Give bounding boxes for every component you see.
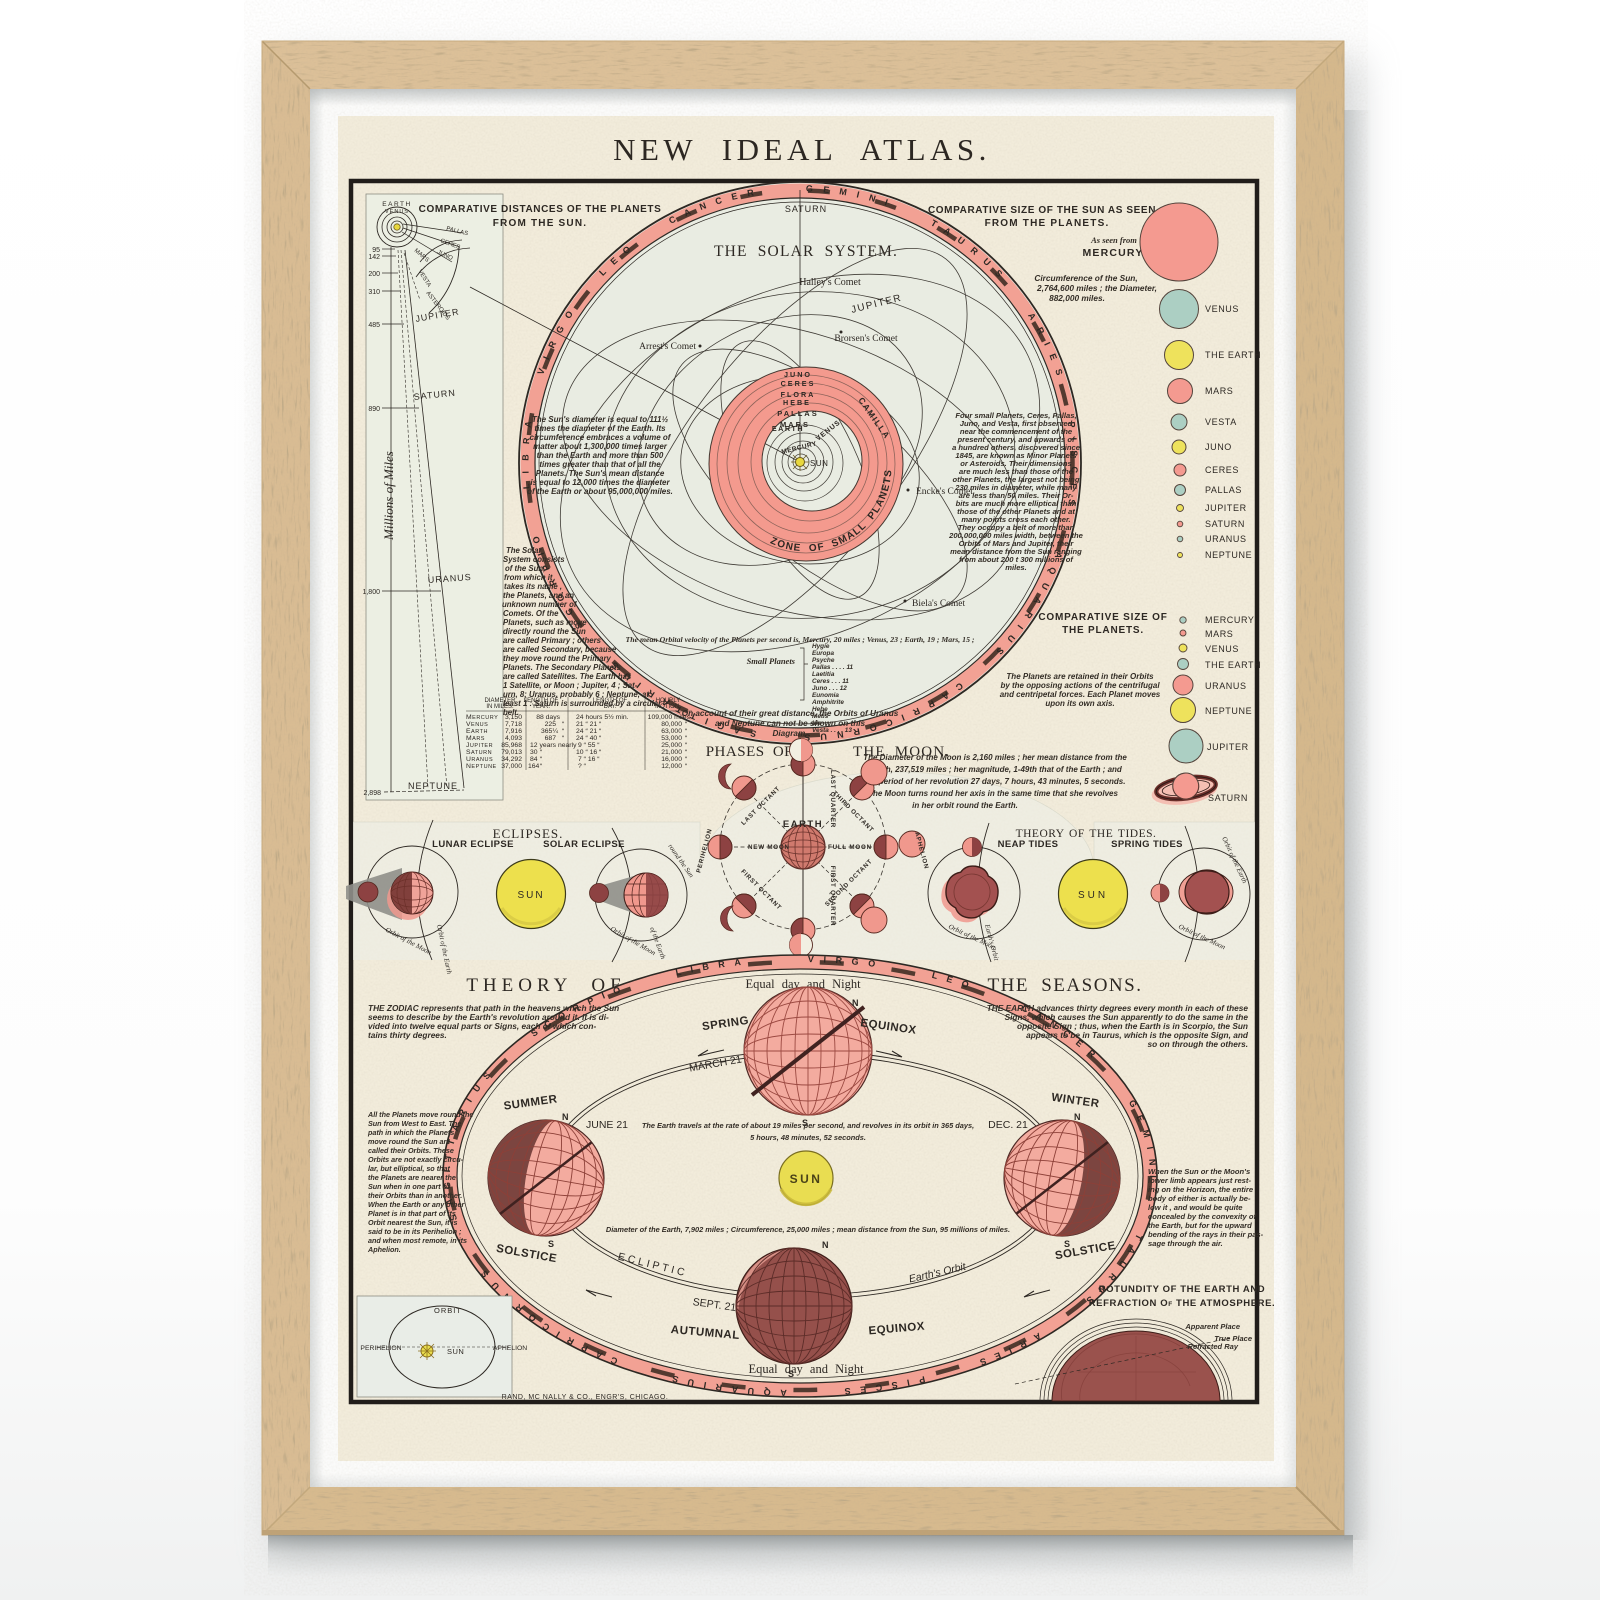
svg-text:200: 200 (368, 271, 380, 278)
svg-text:PALLAS: PALLAS (777, 409, 818, 418)
svg-text:MERCURY: MERCURY (1082, 247, 1143, 259)
svg-text:687: 687 (545, 735, 557, 742)
svg-text:sage through the air.: sage through the air. (1148, 1239, 1223, 1248)
svg-text:of the Earth or about 95,000,0: of the Earth or about 95,000,000 miles. (527, 487, 673, 496)
svg-text:21,000: 21,000 (661, 749, 682, 756)
svg-text:1 Satellite, or Moon ; Jupite: 1 Satellite, or Moon ; Jupiter, 4 ; Sat- (503, 681, 638, 690)
svg-text:N: N (1074, 1112, 1081, 1122)
svg-text:Sun from West to East. The: Sun from West to East. The (368, 1119, 461, 1128)
svg-text:109,000 miles: 109,000 miles (648, 714, 691, 721)
svg-text:Pallas . . . . 11: Pallas . . . . 11 (812, 664, 854, 671)
svg-text:Juno . . . 12: Juno . . . 12 (812, 685, 847, 692)
svg-text:310: 310 (368, 289, 380, 296)
svg-text:All the Planets move round the: All the Planets move round the (367, 1110, 473, 1119)
svg-text:890: 890 (368, 406, 380, 413)
svg-text:34,292: 34,292 (501, 756, 522, 763)
svg-text:miles.: miles. (1005, 563, 1027, 572)
svg-text:1,800: 1,800 (362, 589, 380, 596)
svg-text:from which it: from which it (504, 573, 553, 582)
svg-text:System consists: System consists (503, 555, 565, 564)
svg-text:FULL MOON: FULL MOON (828, 844, 872, 851)
svg-text:CERES: CERES (781, 379, 816, 388)
svg-text:2,764,600 miles ; the Diamete: 2,764,600 miles ; the Diameter, (1036, 283, 1157, 293)
svg-text:concealed by the convexity of: concealed by the convexity of (1148, 1212, 1258, 1221)
svg-text:PHASES OF: PHASES OF (706, 744, 793, 760)
svg-text:said to be in its Perihelion ;: said to be in its Perihelion ; (368, 1227, 462, 1236)
svg-text:142: 142 (368, 254, 380, 261)
svg-text:and Neptune can not be shown o: and Neptune can not be shown on this (715, 719, 866, 728)
svg-text:21 “ 21 “: 21 “ 21 “ (576, 721, 602, 728)
svg-text:RAND, MC NALLY & CO., ENGR'S,: RAND, MC NALLY & CO., ENGR'S, CHICAGO. (502, 1394, 669, 1401)
svg-text:88 days: 88 days (536, 714, 560, 721)
svg-text:JUPITER: JUPITER (1207, 742, 1249, 752)
svg-text:low it , and would be quite: low it , and would be quite (1148, 1203, 1243, 1212)
svg-text:The Earth travels at the rate: The Earth travels at the rate of about 1… (642, 1121, 974, 1130)
svg-text:than the Earth and more than 5: than the Earth and more than 500 (537, 451, 664, 460)
svg-text:MARS: MARS (1205, 386, 1233, 396)
svg-text:EARTH: EARTH (772, 424, 804, 433)
svg-text:63,000: 63,000 (661, 728, 682, 735)
svg-text:84: 84 (530, 756, 538, 763)
svg-text:As seen from: As seen from (1090, 235, 1137, 245)
svg-text:SPRING TIDES: SPRING TIDES (1111, 839, 1183, 850)
svg-text:are called Secondary, because: are called Secondary, because (503, 645, 617, 654)
svg-text:JUNE 21: JUNE 21 (586, 1119, 628, 1131)
svg-text:? “: ? “ (578, 763, 587, 770)
svg-text:9 “ 55 “: 9 “ 55 “ (578, 742, 600, 749)
svg-text:Apparent Place: Apparent Place (1184, 1322, 1240, 1331)
svg-text:VENUS: VENUS (466, 721, 488, 728)
svg-text:85,968: 85,968 (501, 742, 522, 749)
svg-text:Eunomia: Eunomia (812, 692, 839, 699)
svg-text:unknown number of: unknown number of (502, 600, 578, 609)
svg-text:upon its own axis.: upon its own axis. (1045, 699, 1114, 708)
svg-text:NEPTUNE: NEPTUNE (408, 781, 458, 791)
svg-text:VESTA: VESTA (1205, 417, 1237, 427)
svg-text:THE SEASONS.: THE SEASONS. (988, 975, 1143, 996)
svg-text:COMPARATIVE SIZE OF THE SUN AS: COMPARATIVE SIZE OF THE SUN AS SEEN (928, 205, 1156, 216)
svg-text:Psyche: Psyche (812, 657, 835, 664)
svg-text:10 “ 16 “: 10 “ 16 “ (576, 749, 602, 756)
svg-text:THE PLANETS.: THE PLANETS. (1062, 625, 1144, 636)
svg-text:485: 485 (368, 322, 380, 329)
svg-text:SATURN: SATURN (1208, 793, 1248, 803)
svg-text:5 hours, 48 minutes, 52 second: 5 hours, 48 minutes, 52 seconds. (750, 1133, 866, 1142)
svg-text:body of either is actually be-: body of either is actually be- (1148, 1194, 1251, 1203)
svg-text:COMPARATIVE SIZE OF: COMPARATIVE SIZE OF (1038, 612, 1167, 623)
svg-text:is equal to 12,000 times the d: is equal to 12,000 times the diameter (530, 478, 670, 487)
svg-text:MERCURY: MERCURY (1205, 615, 1255, 625)
svg-text:FROM THE PLANETS.: FROM THE PLANETS. (985, 218, 1110, 229)
svg-text:Small Planets: Small Planets (747, 656, 796, 666)
svg-text:The Sun's diameter is equal to: The Sun's diameter is equal to 111½ (532, 415, 669, 424)
svg-text:their Orbits than in another.: their Orbits than in another. (368, 1191, 462, 1200)
svg-text:HEBE: HEBE (783, 398, 811, 407)
svg-text:bending of the rays in their p: bending of the rays in their pas- (1148, 1230, 1264, 1239)
svg-text:matter about 1,300,000 times l: matter about 1,300,000 times larger (533, 442, 668, 451)
svg-text:the Planets, and an: the Planets, and an (503, 591, 574, 600)
svg-text:Arrest's Comet: Arrest's Comet (639, 342, 696, 352)
svg-text:Sun when in one part of: Sun when in one part of (368, 1182, 450, 1191)
svg-text:IN MILES.: IN MILES. (486, 704, 514, 710)
svg-text:NEW MOON: NEW MOON (748, 844, 790, 851)
svg-text:lower limb appears just rest-: lower limb appears just rest- (1148, 1176, 1251, 1185)
svg-text:MARS: MARS (1205, 629, 1233, 639)
svg-text:Planets, such as move: Planets, such as move (503, 618, 587, 627)
svg-text:VENUS: VENUS (1205, 304, 1239, 314)
svg-text:YEAR.: YEAR. (532, 704, 550, 710)
svg-text:SATURN: SATURN (785, 204, 827, 214)
svg-text:The Diameter of the Moon is 2: The Diameter of the Moon is 2,160 miles … (863, 753, 1127, 762)
svg-text:365¼: 365¼ (541, 728, 558, 735)
svg-text:LAST QUARTER: LAST QUARTER (829, 770, 836, 828)
svg-text:directly round the Sun: directly round the Sun (503, 627, 586, 636)
svg-text:VENUS: VENUS (385, 209, 409, 215)
svg-text:Refracted Ray: Refracted Ray (1188, 1342, 1239, 1351)
svg-text:SATURN: SATURN (466, 749, 492, 756)
svg-text:NEPTUNE: NEPTUNE (466, 763, 497, 770)
svg-text:SUN: SUN (790, 1172, 823, 1186)
svg-text:7,916: 7,916 (505, 728, 522, 735)
svg-text:MOTION.: MOTION. (655, 704, 681, 710)
svg-text:Amphitrite: Amphitrite (811, 699, 844, 706)
svg-text:The Solar: The Solar (506, 546, 542, 555)
svg-text:they move round the Primary: they move round the Primary (503, 654, 612, 663)
svg-text:N: N (822, 1240, 829, 1250)
svg-text:Laetitia: Laetitia (812, 671, 835, 678)
svg-text:The Planets are retained in th: The Planets are retained in their Orbits (1006, 672, 1154, 681)
svg-text:Halley's Comet: Halley's Comet (799, 277, 861, 288)
svg-text:37,000: 37,000 (501, 763, 522, 770)
svg-text:164: 164 (528, 763, 540, 770)
svg-text:Diameter of the Earth, 7,902 m: Diameter of the Earth, 7,902 miles ; Cir… (606, 1225, 1010, 1234)
svg-text:24 “ 40 “: 24 “ 40 “ (576, 735, 602, 742)
svg-text:the Earth, but for the upward: the Earth, but for the upward (1148, 1221, 1252, 1230)
svg-text:CERES: CERES (1205, 465, 1239, 475)
svg-text:URANUS: URANUS (466, 756, 493, 763)
svg-text:S: S (788, 1369, 794, 1379)
svg-text:Ceres . . . 11: Ceres . . . 11 (812, 678, 849, 685)
svg-text:MERCURY: MERCURY (466, 714, 498, 721)
svg-text:the Planets are nearer the: the Planets are nearer the (368, 1173, 456, 1182)
svg-text:and when most remote, in its: and when most remote, in its (368, 1236, 467, 1245)
svg-text:EARTH: EARTH (783, 819, 823, 830)
svg-text:NEAP TIDES: NEAP TIDES (998, 839, 1059, 850)
svg-text:SUN: SUN (1078, 890, 1108, 901)
svg-text:of the Sun,: of the Sun, (505, 564, 545, 573)
svg-text:DAY.: DAY. (604, 704, 617, 710)
svg-text:SUN: SUN (447, 1347, 464, 1356)
svg-text:LUNAR ECLIPSE: LUNAR ECLIPSE (432, 839, 514, 850)
svg-text:PALLAS: PALLAS (1205, 485, 1242, 495)
svg-text:move round the Sun are: move round the Sun are (368, 1137, 450, 1146)
svg-text:Aphelion.: Aphelion. (367, 1245, 401, 1254)
svg-text:Vesta . . . . 13: Vesta . . . . 13 (812, 727, 852, 734)
svg-text:times the diameter of the Eart: times the diameter of the Earth. Its (534, 424, 666, 433)
svg-text:times greater than that of all: times greater than that of all the (539, 460, 661, 469)
svg-text:On account of their great dist: On account of their great distance, the … (682, 709, 899, 718)
svg-text:circumference embraces a volum: circumference embraces a volume of (530, 433, 672, 442)
svg-text:Equal day and Night: Equal day and Night (748, 1362, 864, 1376)
svg-text:S: S (548, 1239, 554, 1249)
svg-text:in her orbit round the Earth.: in her orbit round the Earth. (912, 801, 1018, 810)
svg-text:95: 95 (372, 247, 380, 254)
svg-text:Europa: Europa (812, 650, 834, 657)
svg-text:Orbit nearest the Sun, it is: Orbit nearest the Sun, it is (368, 1218, 457, 1227)
svg-text:PERIHELION: PERIHELION (360, 1345, 401, 1352)
svg-text:Circumference of the Sun,: Circumference of the Sun, (1034, 273, 1137, 283)
svg-text:tains thirty degrees.: tains thirty degrees. (368, 1030, 447, 1040)
svg-text:4,093: 4,093 (505, 735, 522, 742)
svg-text:The Moon turns round her axis: The Moon turns round her axis in the sam… (868, 789, 1118, 798)
svg-text:FIRST QUARTER: FIRST QUARTER (829, 866, 836, 927)
svg-text:VENUS: VENUS (1205, 644, 1239, 654)
svg-text:Planet is in that part of its: Planet is in that part of its (368, 1209, 456, 1218)
svg-text:Biela's Comet: Biela's Comet (912, 599, 966, 609)
svg-text:The mean Orbital velocity of t: The mean Orbital velocity of the Planets… (625, 635, 974, 644)
svg-text:ORBIT: ORBIT (434, 1306, 462, 1315)
svg-text:25,000: 25,000 (661, 742, 682, 749)
svg-text:DEC. 21: DEC. 21 (988, 1119, 1028, 1131)
svg-text:ROTUNDITY OF THE EARTH AND: ROTUNDITY OF THE EARTH AND (1099, 1284, 1266, 1295)
svg-text:takes its name ,: takes its name , (504, 582, 562, 591)
svg-text:MARS: MARS (466, 735, 485, 742)
svg-text:REFRACTION OF THE ATMOSPHERE.: REFRACTION OF THE ATMOSPHERE. (1089, 1298, 1276, 1309)
svg-text:80,000: 80,000 (661, 721, 682, 728)
svg-text:NEW IDEAL ATLAS.: NEW IDEAL ATLAS. (613, 132, 991, 167)
svg-text:URANUS: URANUS (1205, 534, 1247, 544)
svg-text:NEPTUNE: NEPTUNE (1205, 706, 1252, 716)
svg-text:12 years nearly: 12 years nearly (530, 742, 577, 749)
svg-text:Planets. The Sun's mean dista: Planets. The Sun's mean distance (536, 469, 665, 478)
svg-text:When the Sun or the Moon's: When the Sun or the Moon's (1148, 1167, 1250, 1176)
svg-text:the period of her revolution 2: the period of her revolution 27 days, 7 … (865, 777, 1126, 786)
svg-text:lar, but elliptical, so that: lar, but elliptical, so that (368, 1164, 450, 1173)
svg-text:When the Earth or any other: When the Earth or any other (368, 1200, 465, 1209)
svg-text:THE SOLAR SYSTEM.: THE SOLAR SYSTEM. (714, 243, 898, 260)
svg-text:SUN: SUN (810, 459, 828, 468)
svg-text:so on through the others.: so on through the others. (1148, 1039, 1248, 1049)
svg-text:7 “ 16 “: 7 “ 16 “ (578, 756, 600, 763)
svg-text:NEPTUNE: NEPTUNE (1205, 550, 1252, 560)
svg-text:JUPITER: JUPITER (466, 742, 493, 749)
svg-text:THE EARTH: THE EARTH (1205, 350, 1261, 360)
svg-text:SOLAR ECLIPSE: SOLAR ECLIPSE (543, 839, 625, 850)
svg-text:SUN: SUN (517, 890, 544, 901)
svg-text:URANUS: URANUS (1205, 681, 1247, 691)
svg-text:225: 225 (545, 721, 557, 728)
svg-text:12,000: 12,000 (661, 763, 682, 770)
svg-text:COMPARATIVE DISTANCES OF THE P: COMPARATIVE DISTANCES OF THE PLANETS (419, 204, 662, 215)
svg-text:are called Primary ; others: are called Primary ; others (503, 636, 602, 645)
svg-text:N: N (562, 1112, 569, 1122)
svg-text:N: N (852, 998, 859, 1008)
svg-text:JUNO: JUNO (1205, 442, 1232, 452)
svg-text:882,000 miles.: 882,000 miles. (1049, 293, 1105, 303)
svg-text:are called Satellites. The Ea: are called Satellites. The Earth has (503, 672, 632, 681)
svg-text:Brorsen's Comet: Brorsen's Comet (834, 334, 898, 344)
svg-text:Earth, 237,519 miles ; her ma: Earth, 237,519 miles ; her magnitude, 1-… (870, 765, 1123, 774)
svg-text:JUNO: JUNO (784, 370, 812, 379)
svg-text:7,718: 7,718 (505, 721, 522, 728)
svg-text:16,000: 16,000 (661, 756, 682, 763)
svg-text:by the opposing actions of the: by the opposing actions of the centrifug… (1000, 681, 1160, 690)
svg-text:24 hours 5½ min.: 24 hours 5½ min. (576, 713, 629, 721)
svg-text:EARTH: EARTH (382, 201, 411, 208)
svg-text:Planets. The Secondary Plane: Planets. The Secondary Planets (503, 663, 622, 672)
svg-text:ing on the Horizon, the entire: ing on the Horizon, the entire (1148, 1185, 1254, 1194)
svg-text:3,150: 3,150 (505, 714, 522, 721)
svg-text:and centripetal forces. Eac: and centripetal forces. Each Planet move… (1000, 690, 1161, 699)
svg-text:Hygie: Hygie (812, 643, 830, 650)
svg-text:Millions of Miles: Millions of Miles (381, 451, 396, 541)
svg-text:JUPITER: JUPITER (1205, 503, 1247, 513)
svg-text:Orbits are not exactly circu-: Orbits are not exactly circu- (368, 1155, 464, 1164)
svg-text:THE EARTH: THE EARTH (1205, 660, 1261, 670)
svg-text:called their Orbits. These: called their Orbits. These (368, 1146, 454, 1155)
svg-text:APHELION: APHELION (493, 1345, 527, 1352)
svg-text:30: 30 (530, 749, 538, 756)
svg-text:SATURN: SATURN (1205, 519, 1245, 529)
svg-text:FROM THE SUN.: FROM THE SUN. (493, 218, 588, 229)
svg-text:79,013: 79,013 (501, 749, 522, 756)
svg-text:24 “ 21 “: 24 “ 21 “ (576, 728, 602, 735)
svg-text:Comets. Of the: Comets. Of the (503, 609, 559, 618)
svg-text:53,000: 53,000 (661, 735, 682, 742)
svg-text:Diagram.: Diagram. (772, 729, 807, 738)
svg-text:EARTH: EARTH (466, 728, 488, 735)
svg-text:path in which the Planets: path in which the Planets (367, 1128, 454, 1137)
svg-text:2,898: 2,898 (363, 790, 381, 797)
